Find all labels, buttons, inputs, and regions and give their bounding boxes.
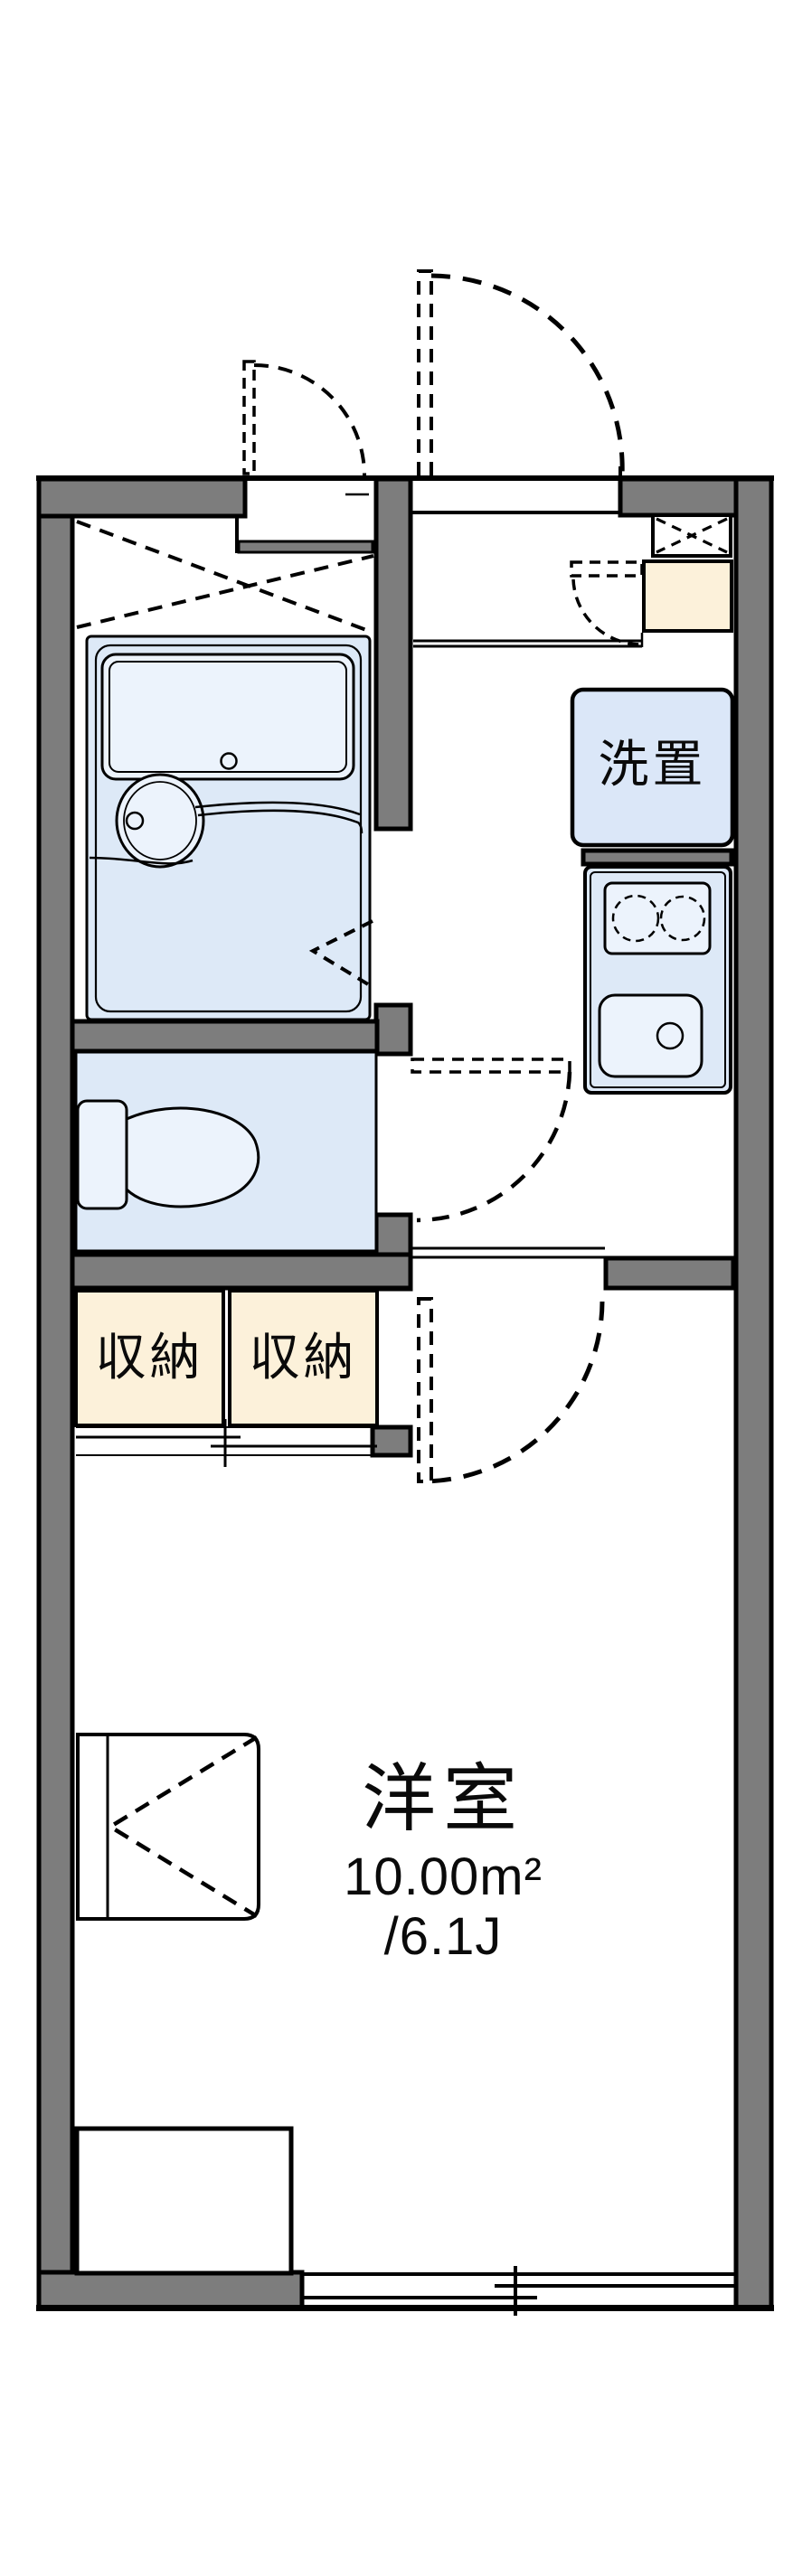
toilet-bowl <box>127 1108 259 1207</box>
washbasin-faucet-icon <box>127 813 143 829</box>
outer-line-bottom <box>36 2305 774 2311</box>
desk-unit <box>78 1735 259 1919</box>
wall-divider-mid <box>376 1005 411 1054</box>
outer-line-top <box>36 475 774 481</box>
wall-bottom-left <box>39 2272 302 2308</box>
bathroom <box>77 522 373 1020</box>
niche-door-leaf <box>244 362 254 474</box>
western-room-objects <box>77 1735 291 2273</box>
room-door-leaf <box>419 1299 431 1481</box>
toilet-room <box>76 1052 570 1251</box>
wall-toilet-storage <box>72 1255 411 1288</box>
wall-niche-strip <box>239 541 373 552</box>
cabinet-door-swing-arc <box>573 579 640 644</box>
cabinet-door-leaf <box>571 562 642 576</box>
washer-space-label: 洗置 <box>572 739 732 790</box>
wall-storage-stub <box>373 1427 411 1455</box>
entrance-doors <box>244 271 622 476</box>
wall-left <box>39 479 72 2308</box>
kitchen-sink <box>600 995 702 1076</box>
toilet-door-leaf <box>412 1059 570 1072</box>
wall-kitchen-stub <box>583 851 732 864</box>
wall-top-left <box>39 479 245 516</box>
service-niche-door-swing-arc <box>254 365 364 475</box>
bathtub <box>102 654 354 779</box>
toilet-door-swing-arc <box>417 1072 570 1220</box>
wall-right <box>736 479 771 2308</box>
toilet-door <box>412 1059 570 1220</box>
floor-step <box>77 2129 291 2273</box>
floor-plan-drawing <box>0 0 812 2576</box>
wall-bath-toilet <box>72 1021 377 1051</box>
room-area-sqm-label: 10.00m² <box>298 1851 588 1904</box>
corridor-threshold-lines <box>410 1248 605 1257</box>
overhead-shelf-x-icon <box>77 522 373 633</box>
shoe-cabinet <box>644 561 732 631</box>
wall-room-top <box>606 1258 733 1288</box>
room-entry <box>410 1248 605 1481</box>
genkan <box>413 515 732 647</box>
room-door-swing-arc <box>422 1302 602 1481</box>
entrance-door-swing-arc <box>431 276 622 476</box>
wall-divider-upper <box>376 479 411 829</box>
storage-label-right: 収納 <box>230 1332 377 1383</box>
entrance-door-leaf <box>419 271 431 474</box>
toilet-tank <box>78 1101 127 1208</box>
room-name-label: 洋室 <box>326 1763 561 1837</box>
floor-plan: 洗置 収納 収納 洋室 10.00m² /6.1J <box>0 0 812 2576</box>
room-area-tatami-label: /6.1J <box>298 1911 588 1963</box>
storage-label-left: 収納 <box>76 1332 223 1383</box>
genkan-step-lines <box>413 633 642 647</box>
